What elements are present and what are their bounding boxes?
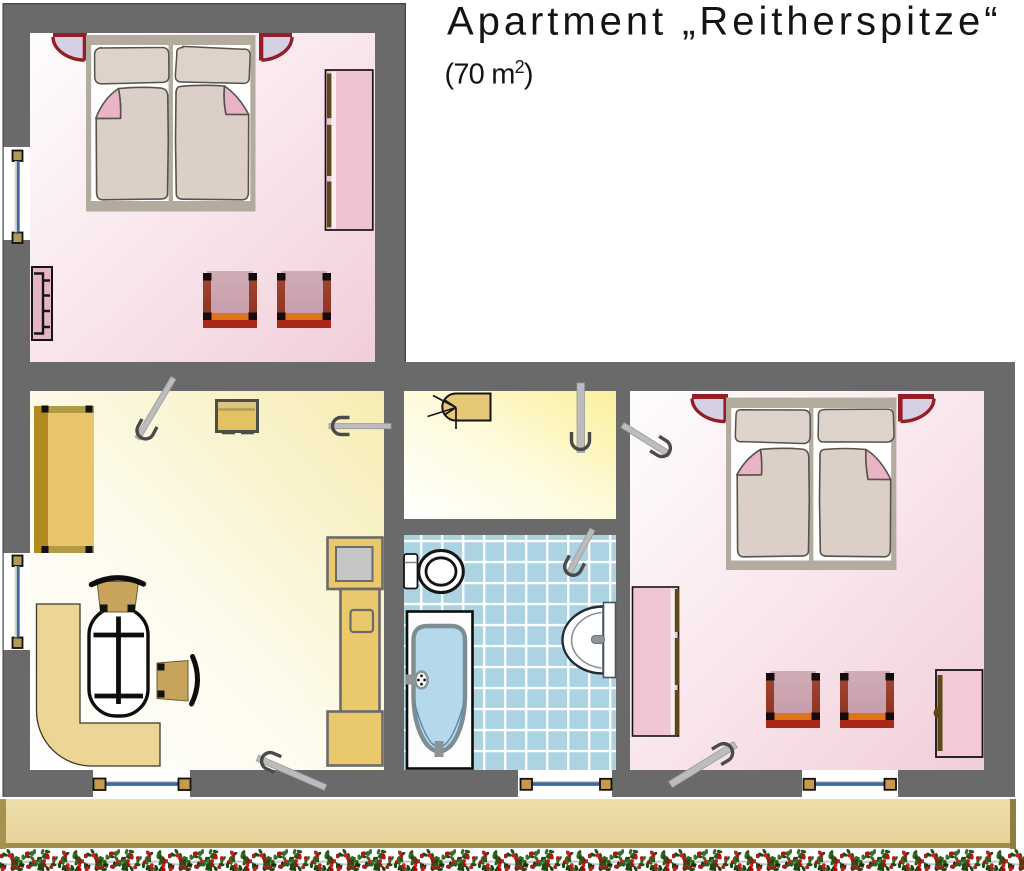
svg-text:Apartment „Reitherspitze“: Apartment „Reitherspitze“ [447, 0, 1001, 44]
